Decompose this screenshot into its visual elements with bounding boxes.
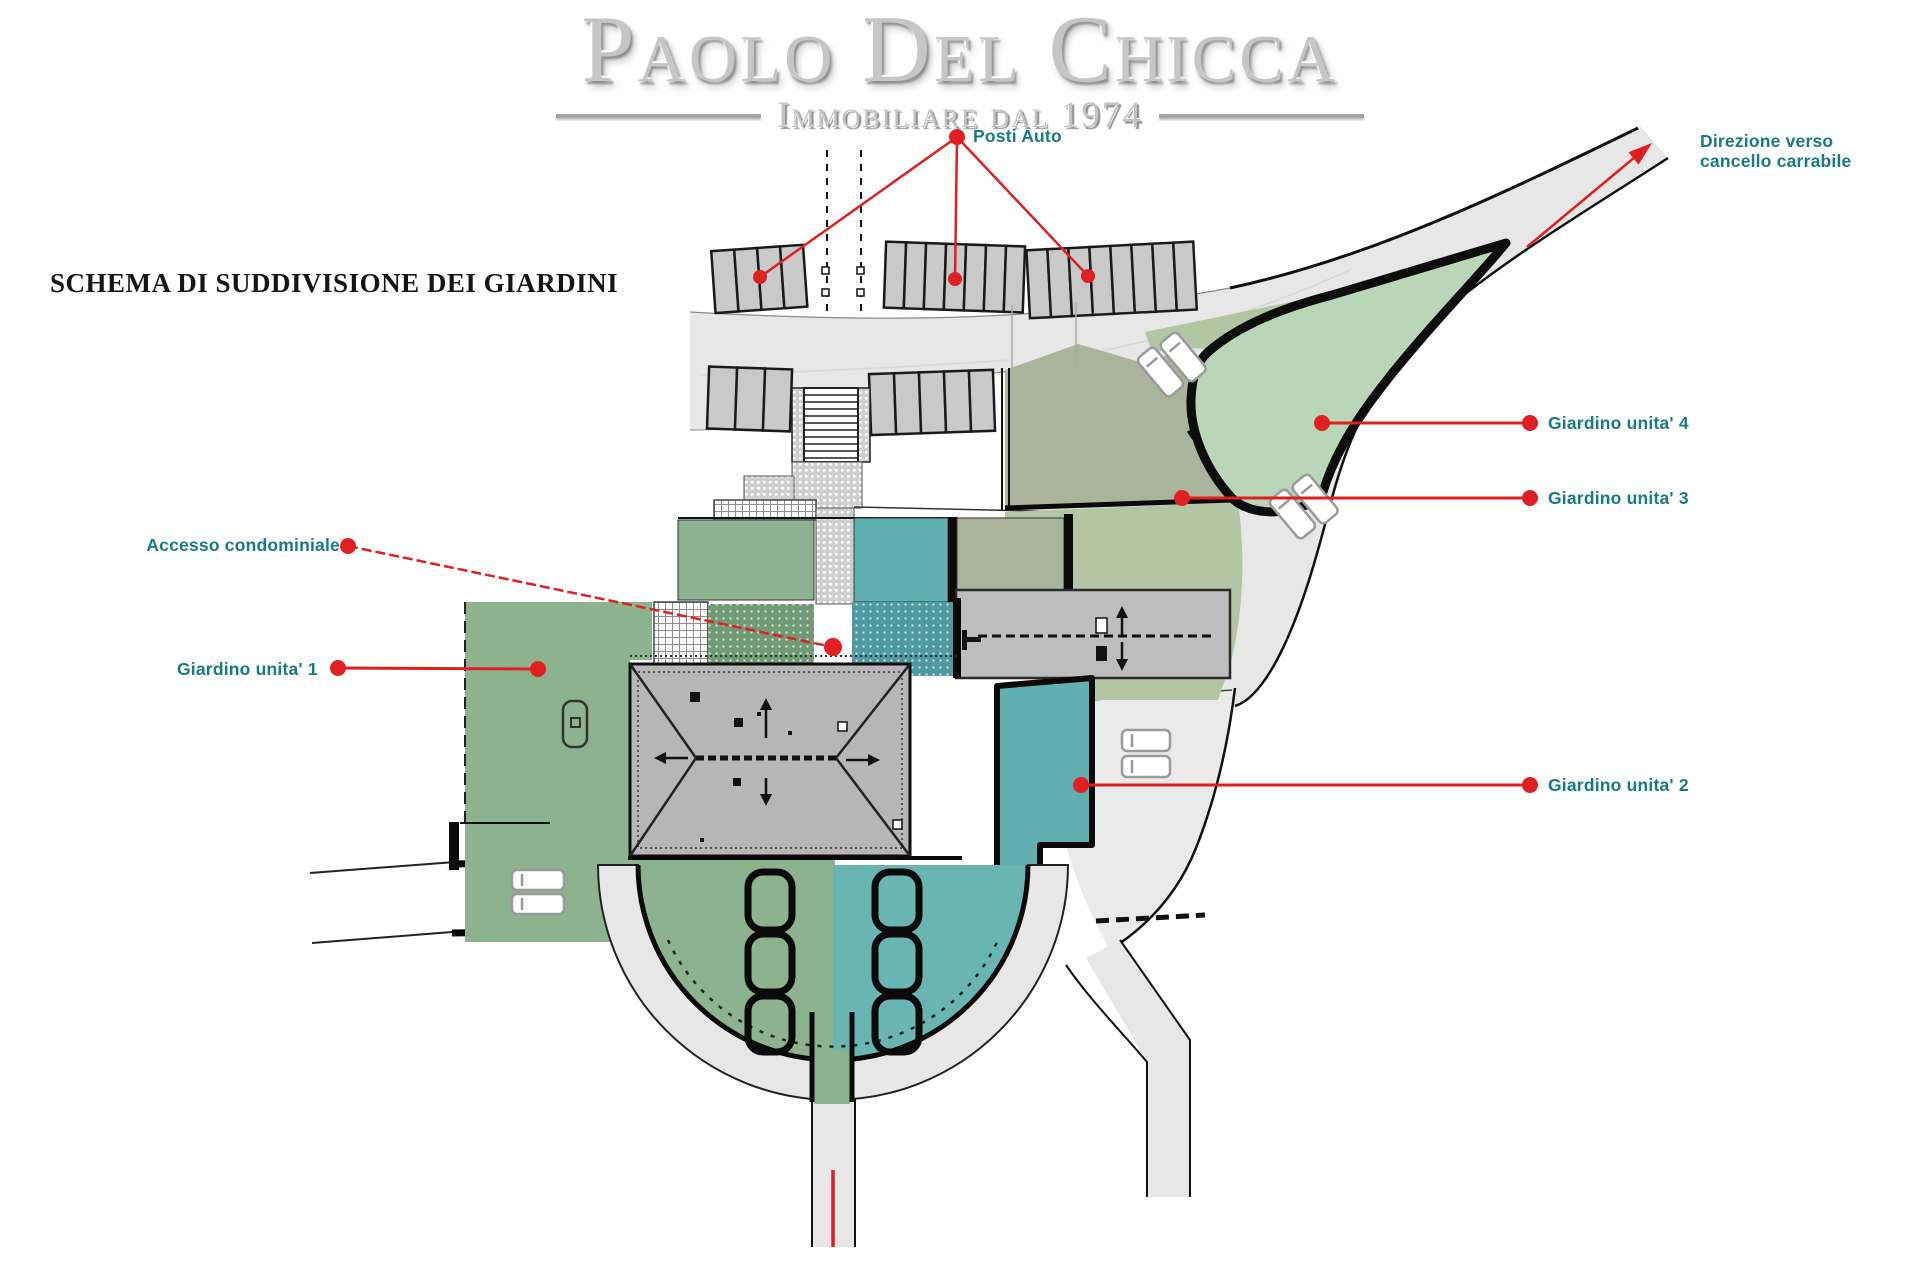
middle-band-green xyxy=(678,520,814,600)
label-direzione: Direzione verso cancello carrabile xyxy=(1700,131,1851,171)
label-direzione-line2: cancello carrabile xyxy=(1700,151,1851,171)
parking-row-3 xyxy=(1026,242,1196,319)
parking-row-5 xyxy=(869,370,995,435)
site-plan-drawing xyxy=(0,0,1920,1280)
southeast-path xyxy=(1066,940,1190,1197)
label-giardino-2: Giardino unita' 2 xyxy=(1548,775,1689,796)
parking-row-4 xyxy=(707,367,792,432)
page: Paolo Del Chicca Immobiliare dal 1974 SC… xyxy=(0,0,1920,1280)
stairway xyxy=(792,388,870,462)
middle-band-teal xyxy=(854,518,948,602)
building-roof xyxy=(628,656,962,858)
label-direzione-line1: Direzione verso xyxy=(1700,131,1851,151)
label-giardino-1: Giardino unita' 1 xyxy=(177,659,318,680)
label-posti-auto: Posti Auto xyxy=(973,126,1062,147)
label-accesso-condominiale: Accesso condominiale xyxy=(140,535,340,556)
label-giardino-3: Giardino unita' 3 xyxy=(1548,488,1689,509)
courtyard xyxy=(598,865,1068,1104)
garage-ramp xyxy=(956,590,1230,678)
label-giardino-4: Giardino unita' 4 xyxy=(1548,413,1689,434)
plan-title: SCHEMA DI SUDDIVISIONE DEI GIARDINI xyxy=(50,268,618,299)
